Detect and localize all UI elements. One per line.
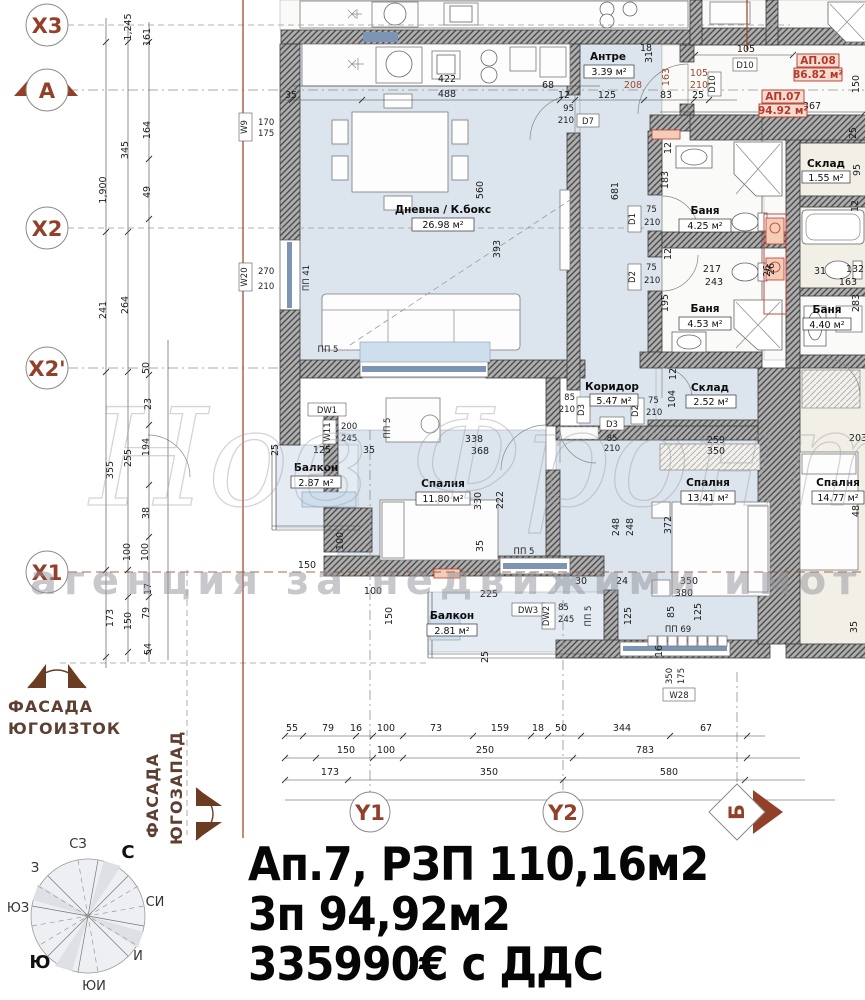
watermark-brand: Нов Фронт bbox=[87, 380, 865, 537]
grid-axis-y2: Y2 bbox=[547, 801, 578, 825]
dim-label: 164 bbox=[142, 121, 153, 139]
room-area: 26.98 м² bbox=[422, 220, 463, 231]
dim-label: 16 bbox=[350, 723, 362, 734]
dim-label: 210 bbox=[690, 80, 708, 91]
grid-axis-x2: X2 bbox=[32, 217, 63, 241]
dim-label: 681 bbox=[610, 182, 621, 200]
dim-label: 79 bbox=[141, 607, 152, 619]
dim-label: 1,245 bbox=[123, 13, 134, 40]
grid-axis-x3: X3 bbox=[32, 14, 63, 38]
room-area: 1.55 м² bbox=[808, 173, 843, 184]
tag-pp69: ПП 69 bbox=[665, 625, 691, 635]
door-tag-dw3: DW3 bbox=[518, 606, 538, 616]
dim-label: 12 bbox=[663, 248, 674, 260]
compass-w: З bbox=[31, 861, 39, 876]
room-name: Дневна / К.бокс bbox=[395, 204, 491, 216]
facade-se-line1: ФАСАДА bbox=[8, 697, 93, 716]
dim-label: 95 bbox=[852, 164, 863, 176]
watermark: Нов Фронт агенция за недвижими имоти bbox=[30, 380, 865, 604]
tag-pp5: ПП 5 bbox=[514, 547, 535, 557]
tag-value: 85 bbox=[558, 603, 569, 613]
dim-label: 243 bbox=[705, 277, 723, 288]
compass-rose: СЗ С СИ И ЮИ Ю ЮЗ З bbox=[7, 837, 165, 994]
dim-label: 132 bbox=[846, 264, 864, 275]
compass-se: ЮИ bbox=[82, 979, 106, 994]
dim-label: 208 bbox=[624, 80, 642, 91]
dim-label: 350 bbox=[480, 767, 498, 778]
facade-sw-line2: ЮГОЗАПАД bbox=[167, 731, 186, 845]
dim-label: 345 bbox=[120, 141, 131, 159]
kitchen-island bbox=[360, 342, 490, 362]
dim-label: 163 bbox=[839, 277, 857, 288]
dim-label: 150 bbox=[337, 745, 355, 756]
dim-label: 783 bbox=[636, 745, 654, 756]
floorplan-page: 1,245 161 1,900 345 164 49 241 264 355 2… bbox=[0, 0, 865, 1000]
room-name: Баня bbox=[690, 303, 719, 315]
title-line-1: Ап.7, РЗП 110,16м2 bbox=[248, 838, 708, 891]
dim-label: 283 bbox=[851, 294, 862, 312]
dim-label: 344 bbox=[613, 723, 631, 734]
dim-label: 12 bbox=[663, 142, 674, 154]
dim-label: 85 bbox=[666, 606, 677, 618]
dim-label: 79 bbox=[322, 723, 334, 734]
dim-label: 488 bbox=[438, 89, 456, 100]
tag-value: 270 bbox=[258, 267, 274, 277]
dim-label: 67 bbox=[700, 723, 712, 734]
room-area: 2.81 м² bbox=[434, 626, 469, 637]
tag-value: 245 bbox=[558, 615, 574, 625]
dim-label: 31 bbox=[814, 266, 826, 277]
door-tag-d7: D7 bbox=[582, 117, 594, 127]
dim-label: 35 bbox=[285, 90, 297, 101]
tag-value: 95 bbox=[563, 104, 574, 114]
apt-id: АП.07 bbox=[765, 91, 801, 103]
tv-unit bbox=[560, 190, 570, 270]
dim-label: 100 bbox=[377, 745, 395, 756]
floorplan-drawing: 1,245 161 1,900 345 164 49 241 264 355 2… bbox=[0, 0, 865, 1000]
dim-label: 422 bbox=[438, 74, 456, 85]
dim-label: 31 bbox=[644, 51, 655, 63]
dim-label: 73 bbox=[430, 723, 442, 734]
dim-label: 125 bbox=[693, 603, 704, 621]
window-tag-w28: W28 bbox=[669, 691, 688, 701]
dim-label: 163 bbox=[661, 68, 672, 86]
tag-pp5: ПП 5 bbox=[584, 606, 594, 627]
tag-pp5: ПП 5 bbox=[318, 345, 339, 355]
apt-id: АП.08 bbox=[800, 55, 836, 67]
dim-label: 560 bbox=[475, 181, 486, 199]
grid-axis-y1: Y1 bbox=[354, 801, 385, 825]
dim-label: 150 bbox=[851, 75, 862, 93]
room-name: Баня bbox=[812, 304, 841, 316]
dim-label: 35 bbox=[475, 540, 486, 552]
dim-label: 159 bbox=[491, 723, 509, 734]
dim-label: 173 bbox=[105, 609, 116, 627]
apt-area: 86.82 м² bbox=[793, 69, 843, 81]
dim-label: 183 bbox=[660, 171, 671, 189]
dim-label: 241 bbox=[98, 301, 109, 319]
tag-value: 210 bbox=[258, 282, 274, 292]
tag-value: 175 bbox=[258, 129, 274, 139]
facade-sw-line1: ФАСАДА bbox=[143, 753, 162, 838]
dim-label: 55 bbox=[286, 723, 298, 734]
dim-label: 49 bbox=[142, 186, 153, 198]
dim-label: 50 bbox=[555, 723, 567, 734]
room-area: 4.40 м² bbox=[809, 320, 844, 331]
apt-area: 94.92 м² bbox=[758, 105, 808, 117]
dim-label: 195 bbox=[660, 294, 671, 312]
room-name: Склад bbox=[807, 158, 845, 170]
tag-pp41: ПП 41 bbox=[302, 265, 312, 291]
room-area: 4.25 м² bbox=[687, 221, 722, 232]
tag-value: 75 bbox=[646, 263, 657, 273]
dim-label: 150 bbox=[123, 612, 134, 630]
dim-label: 173 bbox=[321, 767, 339, 778]
room-name: Антре bbox=[590, 51, 626, 63]
dim-label: 26 bbox=[762, 265, 773, 277]
dim-label: 54 bbox=[143, 643, 154, 655]
dim-label: 393 bbox=[492, 240, 503, 258]
dim-label: 250 bbox=[476, 745, 494, 756]
dim-label: 25 bbox=[692, 90, 704, 101]
grid-axis-x2p: X2' bbox=[28, 357, 65, 381]
dim-label: 68 bbox=[542, 80, 554, 91]
dim-label: 125 bbox=[598, 90, 616, 101]
dim-label: 150 bbox=[384, 607, 395, 625]
compass-e: И bbox=[133, 949, 143, 964]
dim-label: 25 bbox=[848, 127, 859, 139]
door-tag-d1: D1 bbox=[628, 213, 638, 225]
tag-value: 210 bbox=[644, 276, 660, 286]
dim-label: 217 bbox=[703, 264, 721, 275]
room-area: 4.53 м² bbox=[687, 319, 722, 330]
dim-label: 18 bbox=[532, 723, 544, 734]
sofa bbox=[322, 294, 520, 350]
door-tag-d2: D2 bbox=[628, 271, 638, 283]
tag-value: 175 bbox=[677, 668, 687, 684]
title-line-2: 3п 94,92м2 bbox=[248, 888, 510, 941]
compass-ne: СИ bbox=[146, 895, 165, 910]
vent-box bbox=[652, 130, 680, 139]
room-area: 3.39 м² bbox=[591, 67, 626, 78]
dim-label: 1,900 bbox=[98, 176, 109, 203]
dim-label: 161 bbox=[142, 28, 153, 46]
door-tag-d10: D10 bbox=[736, 61, 753, 71]
room-name: Баня bbox=[690, 205, 719, 217]
wall-window-block bbox=[363, 32, 398, 42]
dim-label: 580 bbox=[660, 767, 678, 778]
dim-label: 16 bbox=[654, 645, 665, 657]
dim-label: 50 bbox=[141, 362, 152, 374]
dim-label: 264 bbox=[120, 296, 131, 314]
tag-value: 350 bbox=[665, 668, 675, 684]
facade-marks: ФАСАДА ЮГОИЗТОК ФАСАДА ЮГОЗАПАД bbox=[8, 664, 222, 845]
window-tag-w20: W20 bbox=[240, 267, 250, 286]
listing-title: Ап.7, РЗП 110,16м2 3п 94,92м2 335990€ с … bbox=[248, 838, 708, 991]
dim-label: 105 bbox=[690, 68, 708, 79]
dim-label: 35 bbox=[849, 621, 860, 633]
dim-label: 83 bbox=[660, 90, 672, 101]
dim-label: 25 bbox=[480, 651, 491, 663]
grid-axis-a: A bbox=[39, 79, 56, 103]
compass-n: С bbox=[121, 842, 134, 863]
dim-label: 12 bbox=[850, 200, 861, 212]
watermark-subtitle: агенция за недвижими имоти bbox=[30, 558, 865, 604]
facade-se-line2: ЮГОИЗТОК bbox=[8, 719, 121, 738]
tag-value: 210 bbox=[558, 116, 574, 126]
compass-nw: СЗ bbox=[69, 837, 86, 852]
compass-sw: ЮЗ bbox=[7, 901, 29, 916]
dims-bottom: 55 79 16 100 73 159 18 50 344 67 150 100… bbox=[286, 723, 712, 778]
dim-label: 12 bbox=[558, 90, 570, 101]
tag-value: 75 bbox=[646, 205, 657, 215]
dim-label: 12 bbox=[668, 368, 679, 380]
door-tag-dw2: DW2 bbox=[542, 606, 552, 626]
title-line-3: 335990€ с ДДС bbox=[248, 938, 603, 991]
room-name: Балкон bbox=[430, 610, 474, 622]
window-tag-w9: W9 bbox=[240, 120, 250, 134]
door-tag-d10-rot: D10 bbox=[708, 75, 718, 92]
tag-value: 170 bbox=[258, 118, 274, 128]
dim-label: 100 bbox=[377, 723, 395, 734]
tag-value: 210 bbox=[644, 218, 660, 228]
dim-label: 125 bbox=[623, 607, 634, 625]
grid-axis-b: Б bbox=[725, 804, 749, 820]
dim-label: 105 bbox=[737, 44, 755, 55]
compass-s: Ю bbox=[29, 952, 50, 973]
